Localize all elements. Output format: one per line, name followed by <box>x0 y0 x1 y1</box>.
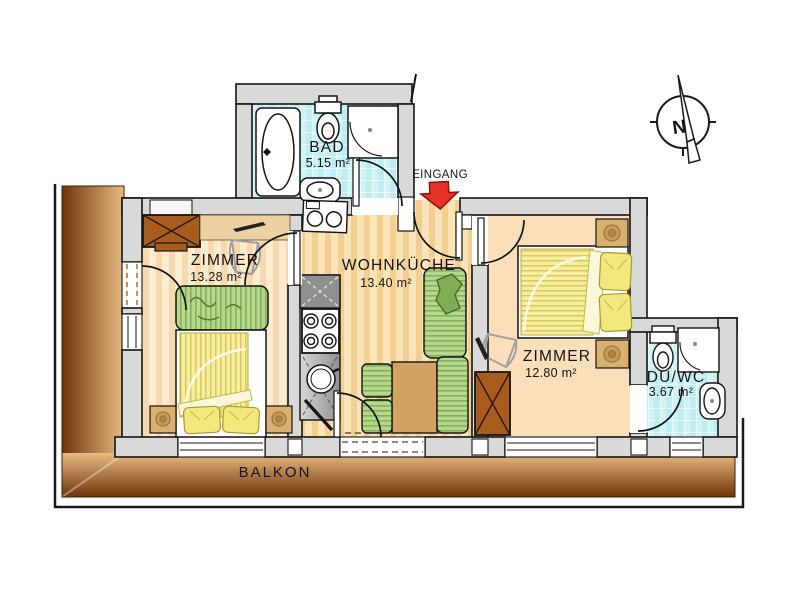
wall-bottom-3 <box>425 437 505 457</box>
dining-table <box>392 362 437 433</box>
compass-north-label: N <box>671 116 688 139</box>
floorplan-drawing: BAD 5.15 m² ZIMMER 13.28 m² WOHNKÜCHE 13… <box>0 0 800 600</box>
wall-left-upper <box>122 198 142 262</box>
wardrobe-left-step <box>155 243 187 251</box>
pillow-right-1 <box>599 252 632 291</box>
room-label-zimmer-left: ZIMMER <box>191 252 259 269</box>
burner-2-inner <box>326 318 333 325</box>
lamp-right-b-dot <box>609 351 616 358</box>
window-bottom-3 <box>670 437 703 457</box>
balcony-door-left-opening <box>122 262 142 308</box>
room-area-wohnkueche: 13.40 m² <box>360 276 412 290</box>
window-left <box>122 314 142 350</box>
toilet-tank <box>315 102 341 113</box>
door-leaf-balcony-wk <box>334 391 340 437</box>
shower-drain <box>368 128 372 132</box>
room-area-duwc: 3.67 m² <box>649 385 693 399</box>
wall-bath-right <box>398 104 414 198</box>
balcony-door-bottom <box>340 437 425 457</box>
duwc-shower-drain <box>693 342 697 346</box>
balcony-bottom-strip <box>62 453 735 497</box>
shower <box>348 106 398 158</box>
door-opening-duwc <box>630 385 647 433</box>
burner-3-inner <box>308 338 315 345</box>
entry-pier-left <box>398 197 414 231</box>
burner-1-inner <box>308 318 315 325</box>
room-label-wohnkueche: WOHNKÜCHE <box>342 256 456 274</box>
duwc-shower <box>678 328 719 372</box>
room-label-bad: BAD <box>309 139 344 156</box>
sofa-left <box>176 286 268 330</box>
compass: N <box>650 75 716 163</box>
window-bottom-1 <box>178 437 265 457</box>
door-leaf-zimmer-left <box>294 231 300 285</box>
room-label-zimmer-right: ZIMMER <box>523 348 591 365</box>
duwc-toilet-tank <box>650 332 676 343</box>
floorplan-page: BAD 5.15 m² ZIMMER 13.28 m² WOHNKÜCHE 13… <box>0 0 800 600</box>
window-bottom-2 <box>505 437 597 457</box>
room-area-zimmer-left: 13.28 m² <box>190 270 242 284</box>
utility-basin-1 <box>307 211 323 227</box>
window-top-small <box>150 200 192 215</box>
duwc-sink-drain <box>710 399 714 403</box>
dining-bench <box>437 357 468 433</box>
utility-unit-detail <box>306 201 319 208</box>
burner-4-inner <box>326 338 333 345</box>
door-leaf-bad <box>353 158 359 206</box>
bed-right-blanket <box>521 249 593 335</box>
wall-right-room <box>630 198 647 385</box>
wall-right-outer <box>718 318 737 437</box>
pillow-left-2 <box>222 406 259 434</box>
room-label-duwc: DU/WC <box>647 369 706 386</box>
utility-basin-2 <box>326 212 342 228</box>
wall-bottom-5 <box>703 437 737 457</box>
balcony-label: BALKON <box>239 464 312 481</box>
lamp-right-a-dot <box>609 230 616 237</box>
wall-left-lower <box>122 350 142 440</box>
entrance-label: EINGANG <box>412 169 468 181</box>
dining-chair-1 <box>362 364 392 397</box>
wall-junction-2 <box>472 439 488 455</box>
wall-left-mid <box>122 308 142 314</box>
door-leaf-zimmer-right <box>478 218 484 265</box>
wall-bath-left <box>236 104 252 198</box>
door-leaf-entrance <box>456 212 462 260</box>
bad-sink-drain <box>318 188 322 192</box>
toilet-button <box>319 96 337 102</box>
room-area-zimmer-right: 12.80 m² <box>525 366 577 380</box>
wall-junction-1 <box>288 439 302 455</box>
toilet-bowl-inner <box>322 123 334 139</box>
lamp-left-a-dot <box>160 416 166 422</box>
wall-top-right <box>460 198 647 215</box>
duwc-toilet-bowl-inner <box>658 352 669 368</box>
duwc-toilet-button <box>652 326 674 332</box>
wall-bottom-1 <box>115 437 178 457</box>
room-area-bad: 5.15 m² <box>306 156 350 170</box>
pillow-right-2 <box>599 293 632 332</box>
lamp-left-b-dot <box>276 416 282 422</box>
pillow-left-1 <box>183 406 220 434</box>
wall-junction-3 <box>631 439 647 455</box>
